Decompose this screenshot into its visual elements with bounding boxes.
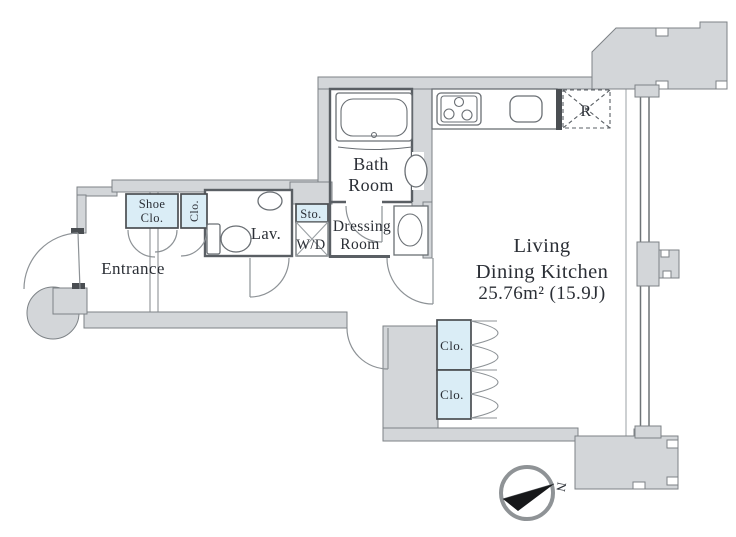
wall-bottom-band [383,428,578,441]
room-label-dressing-2: Room [340,236,380,253]
lavatory-sink [258,192,282,210]
wall-entrance-west [77,195,86,233]
room-label-closet-lower: Clo. [440,387,464,402]
room-label-bathroom-1: Bath [353,154,389,174]
bathtub-edge-line [338,147,412,150]
wall-bath-west [318,77,330,189]
room-label-shoe-closet-2: Clo. [141,211,164,225]
entrance-door-jamb-bottom [72,283,85,289]
room-label-washer-dryer: W/D [296,237,325,253]
room-label-ldk-1: Living [513,235,570,257]
toilet-bowl [221,226,251,252]
wall-notch [661,250,669,257]
room-label-refrigerator: R [580,103,591,120]
closet-bifold-doors [471,321,498,418]
labels: Entrance Shoe Clo. Clo. Lav. Sto. W/D Ba… [101,103,608,402]
toilet-tank [207,224,220,254]
kitchen-sink [510,96,542,122]
room-label-entrance: Entrance [101,259,165,278]
room-label-closet-upper: Clo. [440,338,464,353]
wall-round-pillar-shoulder [53,288,87,314]
wall-notch [667,477,678,485]
dressing-door-swing [387,258,433,304]
window-bottom-cap [635,426,661,438]
counter-end-wall [556,89,562,130]
room-label-ldk-2: Dining Kitchen [476,261,609,283]
wall-notch [667,440,678,448]
wall-corridor-south [84,312,347,328]
wall-bottom-right-block [575,429,678,489]
floor-plan-svg: N Entrance Shoe Clo. Clo. Lav. Sto. W/D … [0,0,736,537]
room-label-ldk-area: 25.76m² (15.9J) [478,283,605,304]
bath-counter-basin [405,155,427,187]
room-label-storage: Sto. [300,207,321,221]
window-mullion-pillar [637,242,659,286]
window-top-cap [635,85,659,97]
room-label-entry-closet: Clo. [187,200,201,222]
room-label-shoe-closet-1: Shoe [139,197,166,211]
floor-plan-canvas: N Entrance Shoe Clo. Clo. Lav. Sto. W/D … [0,0,736,537]
compass-needle [503,484,554,511]
room-label-bathroom-2: Room [348,175,394,195]
room-label-dressing-1: Dressing [333,218,391,235]
room-label-lavatory: Lav. [251,224,281,243]
ldk-door-swing [347,328,388,369]
lavatory-door-swing [250,258,289,297]
entrance-door-swing [24,233,80,289]
entry-closet-door-swing [181,230,207,256]
washbasin-cabinet [394,206,428,255]
compass-north-label: N [553,481,570,493]
wall-top-north [318,77,598,89]
dressing-fixtures [394,206,428,255]
wall-notch [656,28,668,36]
wall-notch [633,482,645,489]
wall-above-storage [290,182,332,204]
wall-notch [716,81,727,89]
shoe-closet-door-swing [128,230,155,257]
compass: N [501,467,570,519]
wall-ldk-southwest-block [383,326,438,436]
wall-notch [663,271,671,278]
